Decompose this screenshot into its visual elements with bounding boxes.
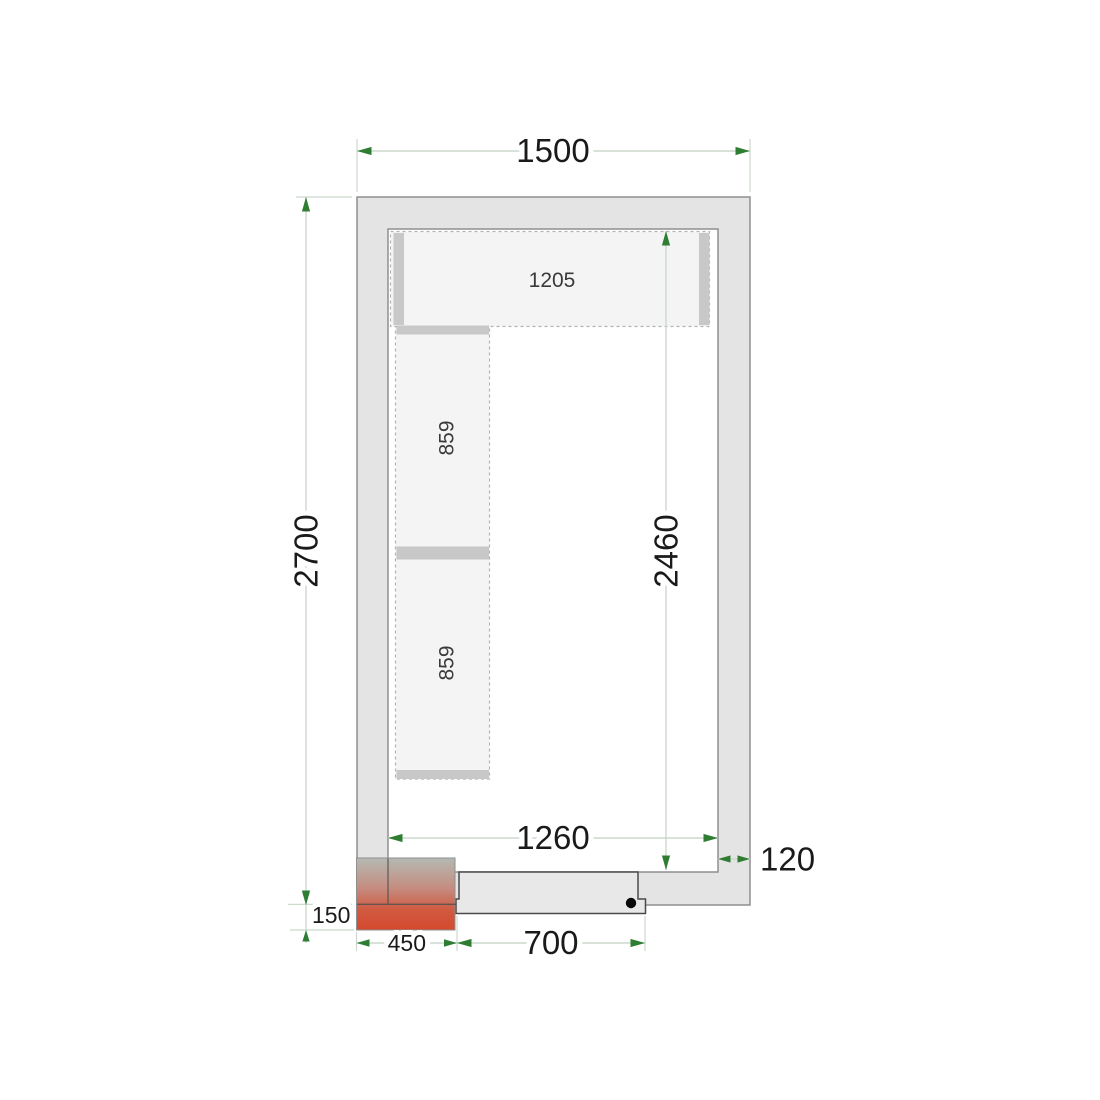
dim-label-outer-depth: 2700 (288, 514, 325, 587)
shelf-edge-bar (397, 326, 490, 335)
left-shelf-upper-length-label: 859 (436, 420, 459, 455)
dim-label-inner-depth: 2460 (648, 514, 685, 587)
shelf-edge-bar (397, 770, 490, 779)
cold-room-floor-plan: 1205 859 859 (0, 0, 1100, 1100)
dim-label-inner-width: 1260 (516, 819, 589, 856)
shelf-edge-bar (699, 233, 710, 325)
cold-room-plan-page: 1205 859 859 (0, 0, 1100, 1100)
dim-label-outer-width: 1500 (516, 132, 589, 169)
top-shelf-length-label: 1205 (529, 269, 576, 292)
dim-label-unit-overhang: 150 (312, 902, 350, 928)
door-leaf (456, 872, 646, 914)
dim-label-door-width: 700 (523, 924, 578, 961)
shelf-edge-bar (394, 233, 405, 325)
dim-label-unit-width: 450 (388, 930, 426, 956)
dim-label-wall-thickness: 120 (760, 841, 815, 878)
left-shelf-lower-length-label: 859 (436, 645, 459, 680)
door-handle (626, 898, 636, 908)
shelf-edge-bar (397, 547, 490, 560)
cooling-unit (357, 858, 456, 930)
door (456, 872, 646, 914)
